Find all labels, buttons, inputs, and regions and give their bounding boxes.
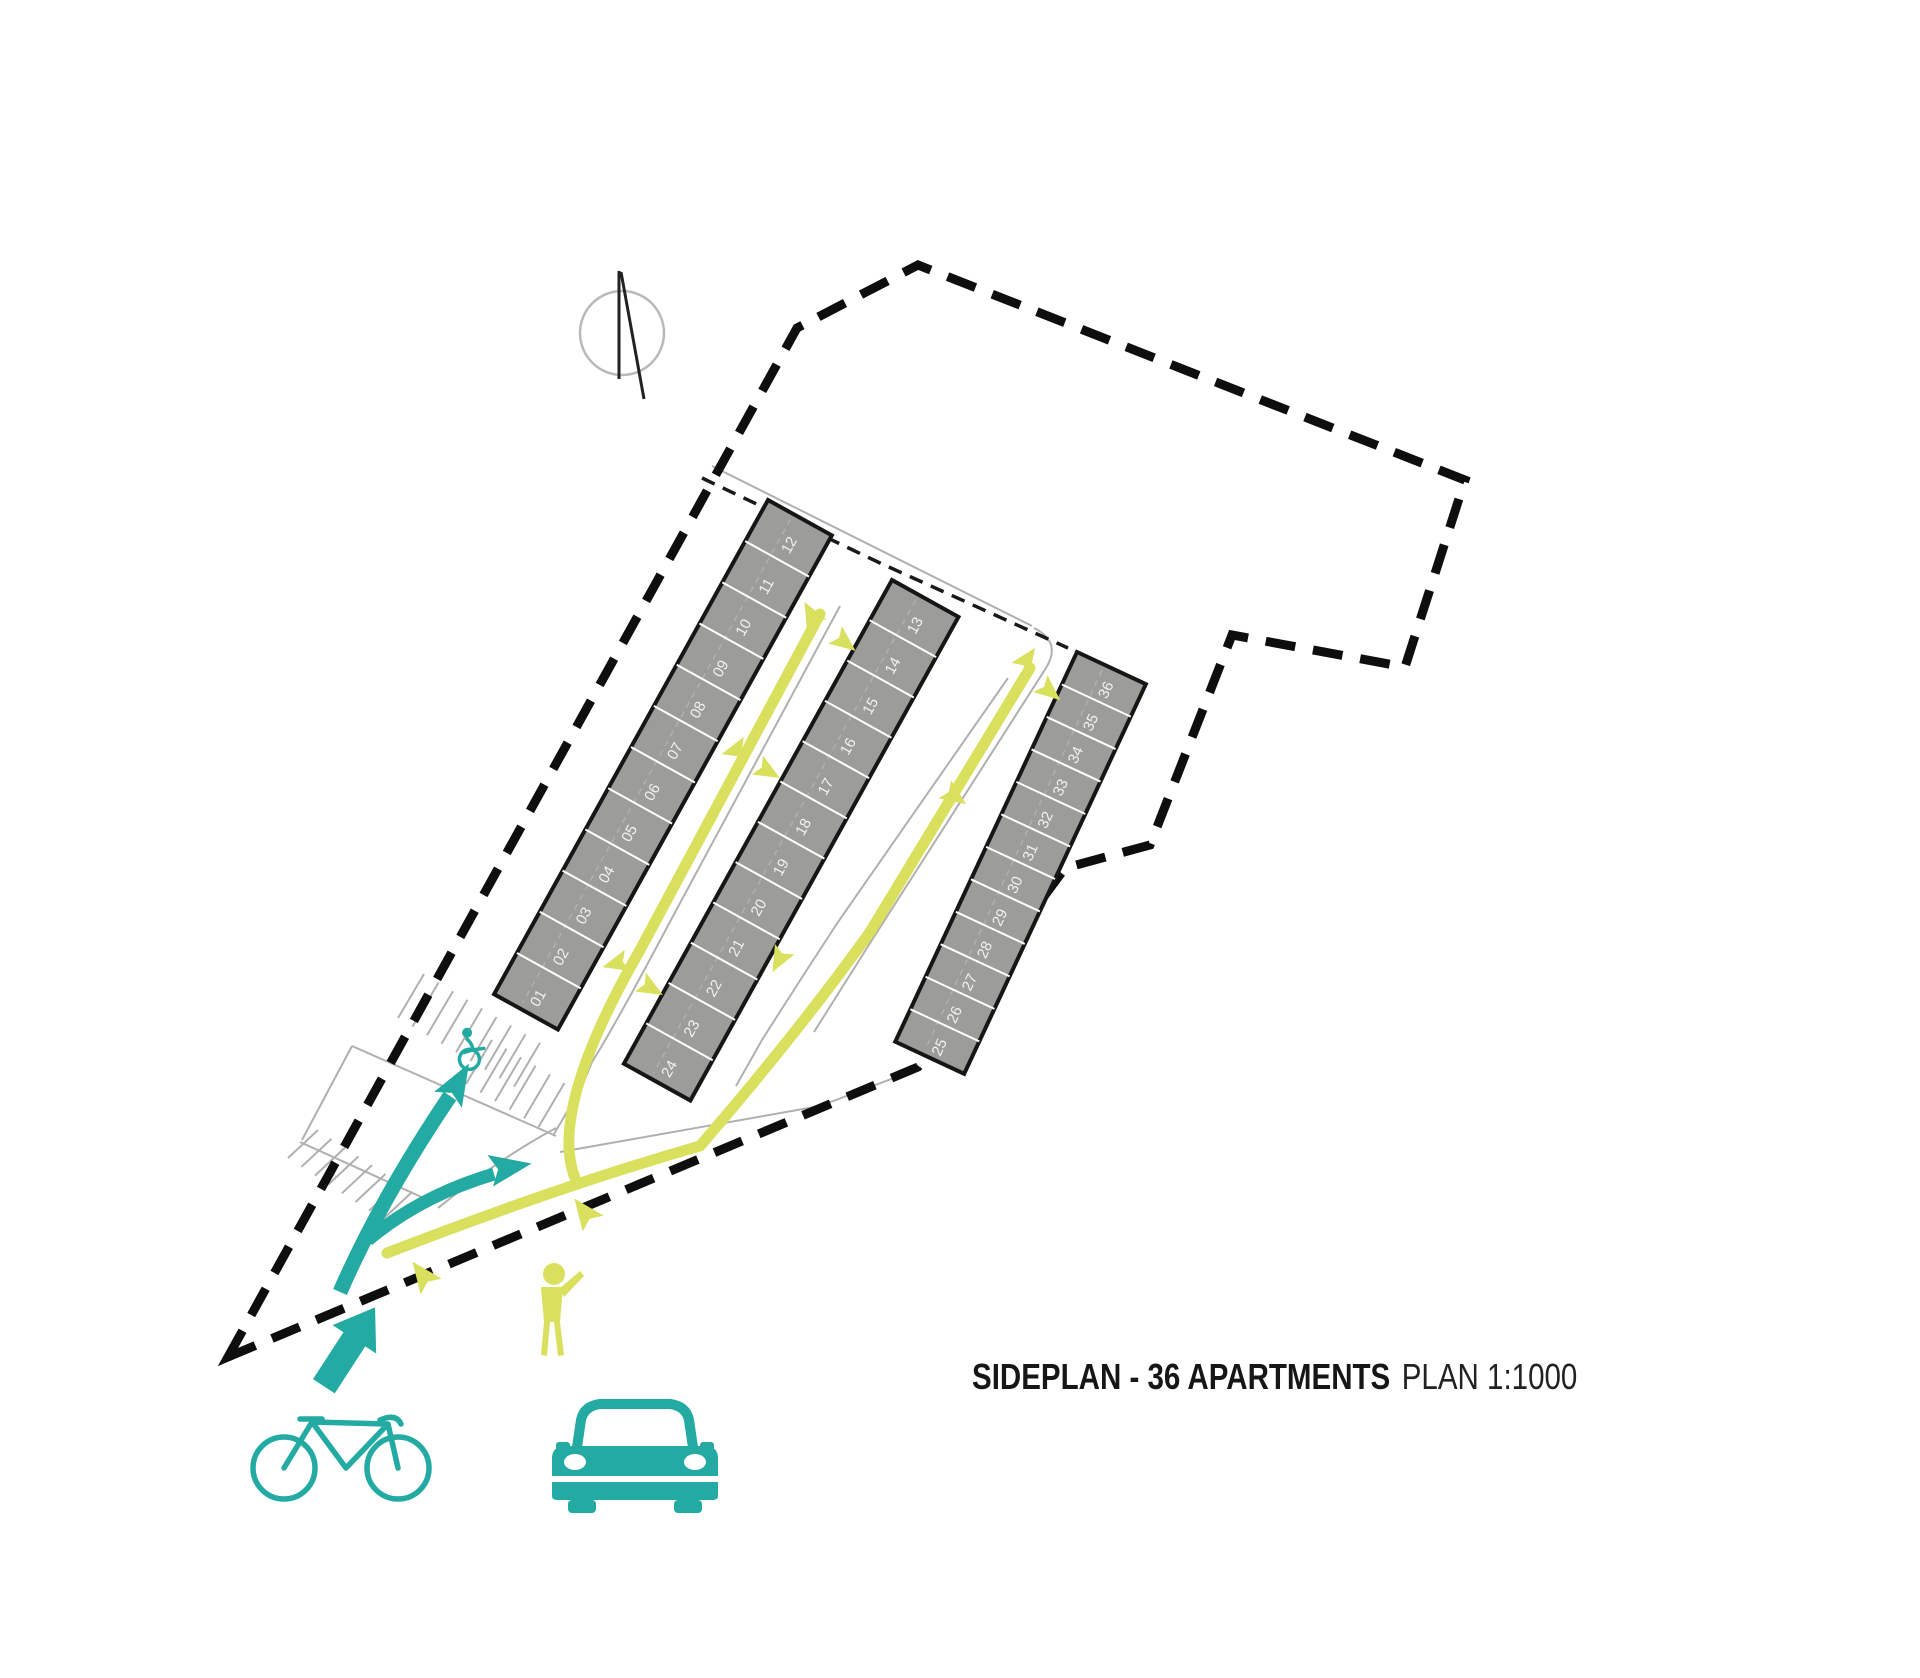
- wheelchair-accessible-parking-icon: [450, 1025, 488, 1072]
- pedestrian-icon: [541, 1263, 584, 1356]
- plan-scale-label: PLAN 1:1000: [1402, 1356, 1578, 1397]
- parking-stall-line: [302, 1139, 332, 1167]
- path-direction-arrow: [402, 1254, 442, 1295]
- apartment-block-3: 363534333231302928272625: [895, 652, 1146, 1074]
- car-icon: [550, 1404, 720, 1513]
- north-compass-icon: [580, 271, 664, 399]
- parking-stall-line: [442, 1000, 468, 1044]
- parking-stall-line: [288, 1130, 318, 1158]
- site-plan-svg: 1211100908070605040302011314151617181920…: [0, 0, 1920, 1678]
- compass-ring: [580, 291, 664, 375]
- bicycle-icon: [253, 1417, 429, 1499]
- parking-stall-line: [524, 1074, 550, 1118]
- site-plan-page: 1211100908070605040302011314151617181920…: [0, 0, 1920, 1678]
- parking-stall-line: [539, 1083, 565, 1127]
- site-entry-arrow: [302, 1293, 397, 1400]
- path-direction-arrow: [1011, 642, 1044, 676]
- parking-stall-line: [342, 1165, 372, 1193]
- plan-title: SIDEPLAN - 36 APARTMENTS: [972, 1356, 1390, 1397]
- car-route-arrowhead: [487, 1148, 534, 1187]
- plan-caption: SIDEPLAN - 36 APARTMENTSPLAN 1:1000: [972, 1356, 1577, 1398]
- road-edge-line: [302, 1046, 352, 1140]
